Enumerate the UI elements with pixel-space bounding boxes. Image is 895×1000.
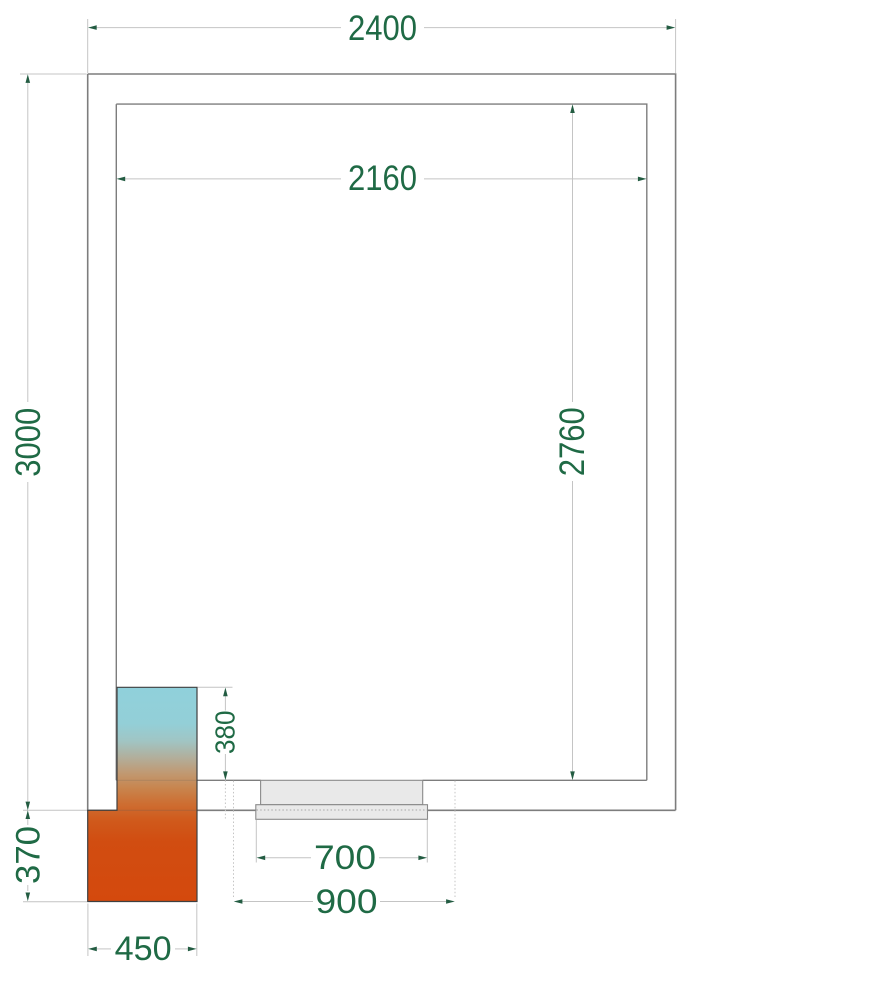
svg-text:900: 900: [316, 883, 378, 921]
svg-text:2400: 2400: [348, 8, 417, 48]
svg-text:700: 700: [314, 839, 376, 877]
svg-text:2760: 2760: [552, 407, 592, 476]
svg-text:3000: 3000: [8, 408, 48, 477]
svg-text:2160: 2160: [348, 158, 417, 198]
svg-text:380: 380: [210, 711, 241, 755]
svg-text:370: 370: [10, 826, 48, 884]
svg-text:450: 450: [115, 930, 172, 968]
